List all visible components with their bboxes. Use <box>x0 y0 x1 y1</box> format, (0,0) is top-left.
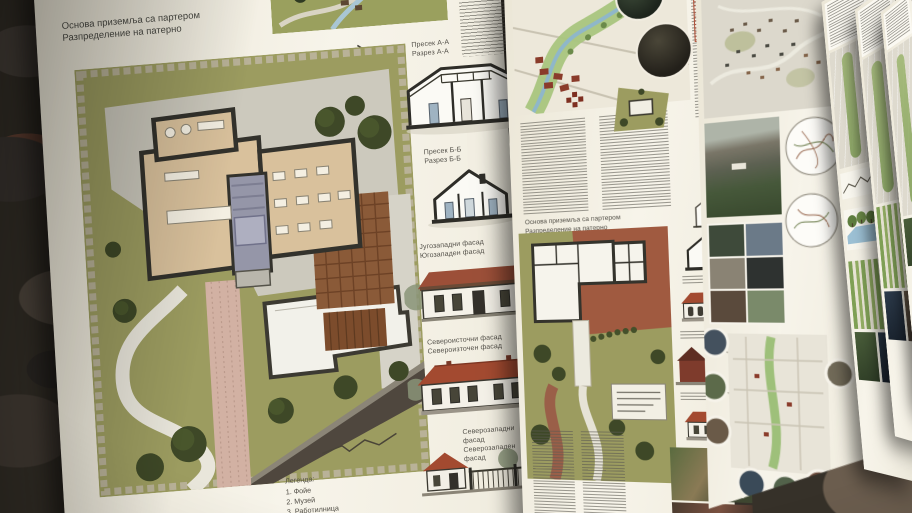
town-map-drawing <box>701 0 841 119</box>
photo-thumb <box>746 223 783 256</box>
poster-ground-floor-plan: Основа приземља са партером Разпределени… <box>32 0 533 513</box>
legend-column <box>532 430 576 513</box>
photo-thumb <box>747 257 784 289</box>
photo-thumb <box>711 291 747 322</box>
photo-thumb <box>709 224 745 256</box>
numbered-list-left <box>520 118 588 216</box>
sketch-circle-diagram <box>783 190 840 249</box>
photo-row <box>903 214 912 266</box>
poster1-title: Основа приземља са партером Разпределени… <box>61 10 201 46</box>
site-plan-drawing <box>74 44 430 498</box>
location-map-fragment <box>269 0 448 34</box>
hillside-town-photo <box>704 117 781 218</box>
section-aa-label: Пресек А-А Разрез А-А <box>411 38 450 59</box>
monastery-building <box>732 163 747 170</box>
legend-bulgarian: Легенда: 1. Фойе 2. Музей 3. Работилница… <box>285 469 385 513</box>
location-map-drawing <box>269 0 448 34</box>
photo-thumb <box>747 291 784 323</box>
photo-thumb <box>903 214 912 266</box>
exhibition-scene: Основа приземља са партером Разпределени… <box>0 0 912 513</box>
photo-thumb <box>884 291 906 341</box>
legend-column <box>581 431 627 513</box>
photo-thumb <box>855 332 880 382</box>
site-detail-drawing <box>610 78 672 133</box>
photo-thumb <box>710 258 746 290</box>
photo-grid <box>707 220 787 324</box>
